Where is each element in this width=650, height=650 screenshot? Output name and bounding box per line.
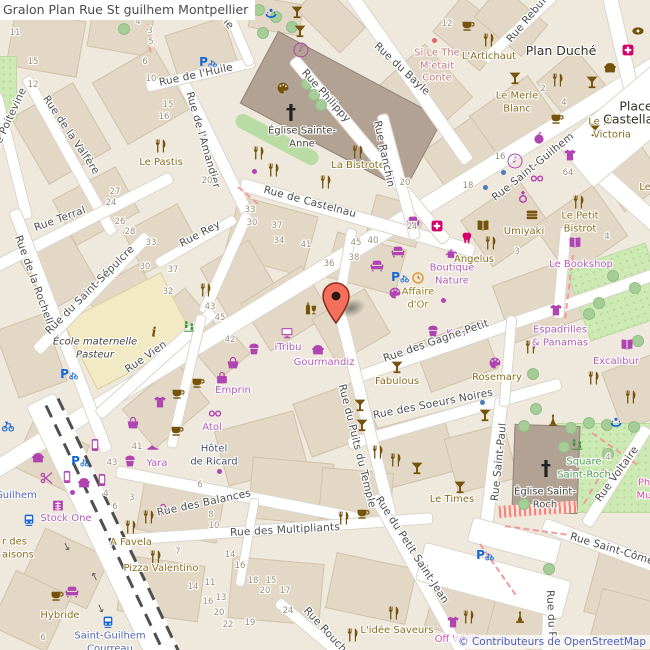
parking-icon: P xyxy=(71,455,89,467)
house-number: 37 xyxy=(272,221,283,231)
house-number: 5 xyxy=(148,37,153,47)
bag-icon xyxy=(216,372,229,385)
fork-icon xyxy=(154,140,167,153)
cup-icon xyxy=(51,589,64,602)
poi-label: Atol xyxy=(202,422,221,435)
couch-icon xyxy=(392,246,405,259)
house-number: 26 xyxy=(115,217,126,227)
house-number: 14 xyxy=(225,550,236,560)
tree xyxy=(593,297,605,309)
house-number: 64 xyxy=(563,168,574,178)
cocktail-icon xyxy=(586,76,599,89)
poi-label: L'idée Saveurs xyxy=(360,625,433,638)
poi-dot xyxy=(501,170,506,175)
fountain-icon xyxy=(265,8,278,21)
oval-icon xyxy=(632,25,645,38)
poi-dot xyxy=(441,298,446,303)
house-number: 22 xyxy=(223,620,234,630)
tree xyxy=(583,417,595,429)
house-number: 24 xyxy=(106,198,117,208)
poi-label: Le PetitBistrot xyxy=(561,211,598,236)
cup-icon xyxy=(462,19,475,32)
house-number: 20 xyxy=(202,176,213,186)
poi-label: Pizza Valentino xyxy=(123,563,198,576)
cup-icon xyxy=(192,376,205,389)
house-number: 3 xyxy=(514,247,519,257)
poi-label: École maternellePasteur xyxy=(53,337,137,362)
apple-icon xyxy=(533,132,546,145)
house-number: 41 xyxy=(301,240,312,250)
tree xyxy=(527,368,539,380)
cross-icon: † xyxy=(286,102,296,122)
poi-label: PhMu xyxy=(637,478,650,503)
bike-icon xyxy=(2,420,15,433)
fork-icon xyxy=(142,511,155,524)
poi-label: Affaired'Or xyxy=(402,287,435,312)
tree xyxy=(257,27,269,39)
house-number: 27 xyxy=(110,187,121,197)
tshirt-icon xyxy=(550,304,563,317)
couch-icon xyxy=(66,586,79,599)
poi-label: Hôtelde Ricard xyxy=(190,444,237,469)
poi-label: Guilhem xyxy=(0,490,37,503)
poi-label: Saint-GuilhemCourreau xyxy=(74,631,145,650)
fork-icon xyxy=(387,607,400,620)
house-number: 3 xyxy=(129,493,134,503)
poi-label: Fabulous xyxy=(375,376,419,389)
house-number: 16 xyxy=(203,597,214,607)
cross-icon: † xyxy=(541,458,551,478)
bread-icon xyxy=(312,344,325,357)
statue-icon xyxy=(514,611,527,624)
fork-icon xyxy=(389,454,402,467)
wine-icon xyxy=(305,303,318,316)
house-number: 42 xyxy=(225,335,236,345)
poi-label: Stock One xyxy=(40,513,91,526)
shoe-icon xyxy=(147,440,160,453)
house-number: 12 xyxy=(28,80,39,90)
house-number: 16 xyxy=(159,112,170,122)
bread-icon xyxy=(32,452,45,465)
house-number: 45 xyxy=(215,313,226,323)
house-number: 4 xyxy=(605,453,610,463)
poi-label: Hybride xyxy=(40,610,79,623)
poi-label: r desaisons xyxy=(2,537,34,562)
tree xyxy=(118,23,130,35)
house-number: 30 xyxy=(247,218,258,228)
poi-label: iTribu xyxy=(275,342,302,355)
poi-label: Église Sainte-Anne xyxy=(268,126,336,151)
poi-dot xyxy=(252,169,257,174)
poi-dot xyxy=(217,469,222,474)
fork-icon xyxy=(624,391,637,404)
tree xyxy=(518,420,530,432)
fork-icon xyxy=(351,146,364,159)
house-number: 24 xyxy=(283,606,294,616)
tshirt-icon xyxy=(154,396,167,409)
house-number: 34 xyxy=(274,236,285,246)
poi-label: Le xyxy=(639,182,650,195)
house-number: 10 xyxy=(146,74,157,84)
fork-icon xyxy=(319,176,332,189)
poi-label: Espadrilles& Panamas xyxy=(532,325,588,350)
cupcake-icon xyxy=(248,343,261,356)
house-number: 7 xyxy=(175,547,180,557)
house-number: 32 xyxy=(163,287,174,297)
house-number: 45 xyxy=(351,238,362,248)
map-pin[interactable] xyxy=(321,282,351,324)
house-number: 4 xyxy=(561,98,566,108)
map-canvas[interactable]: →→→i††♪♪PPPPPLe PastisLa BistroteL'Artic… xyxy=(0,0,650,650)
cocktail-icon xyxy=(391,361,404,374)
fountain-icon xyxy=(610,417,623,430)
tooth-icon xyxy=(462,232,475,245)
cup-icon xyxy=(172,387,185,400)
cup-icon xyxy=(551,112,564,125)
poi-label: Plan Duché xyxy=(526,45,597,58)
page-title: Gralon Plan Rue St guilhem Montpellier xyxy=(0,0,255,20)
house-number: 40 xyxy=(368,236,379,246)
house-number: 14 xyxy=(188,582,199,592)
street-label: Rue du P xyxy=(544,590,558,638)
fork-icon xyxy=(462,611,475,624)
fork-icon xyxy=(551,74,564,87)
tree xyxy=(632,335,644,347)
house-number: 11 xyxy=(205,578,216,588)
clock-icon xyxy=(412,272,425,285)
tree xyxy=(607,270,619,282)
poi-label: A Favela xyxy=(110,537,152,550)
house-number: 11 xyxy=(10,28,21,38)
poi-label: Église Saint-Roch xyxy=(514,487,576,512)
poi-label: Le Pastis xyxy=(139,157,183,170)
house-number: 19 xyxy=(245,618,256,628)
parking-icon: P xyxy=(476,549,494,561)
tree xyxy=(583,308,595,320)
fork-icon xyxy=(267,164,280,177)
fork-icon xyxy=(484,237,497,250)
cocktail-icon xyxy=(454,481,467,494)
fork-icon xyxy=(199,284,212,297)
fork-icon xyxy=(482,34,495,47)
poi-label: SquareSaint-Roch xyxy=(557,457,611,482)
house-number: 33 xyxy=(245,205,256,215)
bread-icon xyxy=(604,62,617,75)
house-number: 4 xyxy=(103,489,108,499)
ring-icon xyxy=(517,191,530,204)
basket-icon xyxy=(127,417,140,430)
poi-label: PlaceCastellane xyxy=(603,101,650,126)
basket-icon xyxy=(227,357,240,370)
tree xyxy=(558,441,570,453)
house-number: 33 xyxy=(146,238,157,248)
house-number: 3 xyxy=(147,26,152,36)
house-number: 36 xyxy=(324,259,335,269)
music-icon: ♪ xyxy=(508,154,523,169)
cocktail-icon xyxy=(479,409,492,422)
poi-label: BoutiqueNature xyxy=(430,263,475,288)
cocktail-icon xyxy=(291,6,304,19)
poi-label: Yara xyxy=(146,458,167,471)
burger-icon xyxy=(526,209,539,222)
palette-icon xyxy=(389,287,402,300)
phone-icon xyxy=(96,474,109,487)
house-number: 41 xyxy=(132,442,143,452)
cocktail-icon xyxy=(294,25,307,38)
house-number: 15 xyxy=(266,576,277,586)
house-number: 37 xyxy=(168,265,179,275)
book-icon xyxy=(477,220,490,233)
house-number: 15 xyxy=(163,100,174,110)
bread-icon xyxy=(78,477,91,490)
med-icon xyxy=(431,220,444,233)
house-number: 24 xyxy=(407,222,418,232)
glasses-icon xyxy=(209,407,222,420)
poi-dot xyxy=(432,38,437,43)
fork-icon xyxy=(371,446,384,459)
cup-icon xyxy=(171,424,184,437)
house-number: 6 xyxy=(142,57,147,67)
house-number: 6 xyxy=(197,480,202,490)
house-number: 16 xyxy=(235,561,246,571)
house-number: 15 xyxy=(28,57,39,67)
tree xyxy=(530,403,542,415)
phone-icon xyxy=(61,471,74,484)
book-icon xyxy=(621,339,634,352)
house-number: 6 xyxy=(40,633,45,643)
house-number: 18 xyxy=(463,181,474,191)
poi-label: Umiyaki xyxy=(504,226,544,239)
house-number: 8 xyxy=(208,510,213,520)
house-number: 43 xyxy=(107,458,118,468)
palette-icon xyxy=(489,357,502,370)
poi-dot xyxy=(483,185,488,190)
house-number: 16 xyxy=(495,152,506,162)
house-number: 4 xyxy=(604,232,609,242)
poi-label: Rosemary xyxy=(472,372,522,385)
house-number: 17 xyxy=(280,586,291,596)
pc-icon xyxy=(281,327,294,340)
med-icon xyxy=(622,44,635,57)
phone-icon xyxy=(89,439,102,452)
music-icon: ♪ xyxy=(294,43,309,58)
poi-label: La Bistrote xyxy=(331,160,385,173)
book-icon xyxy=(569,237,582,250)
fork-icon xyxy=(124,521,137,534)
house-number: 2 xyxy=(540,84,545,94)
tree xyxy=(543,563,555,575)
palette-icon xyxy=(277,82,290,95)
fork-icon xyxy=(149,551,162,564)
statue-icon xyxy=(547,414,560,427)
house-number: 6 xyxy=(112,502,117,512)
parking-icon: P xyxy=(60,368,78,380)
info-icon: i xyxy=(152,327,157,340)
tram-icon xyxy=(102,616,115,629)
scissors-icon xyxy=(41,472,54,485)
poi-label: Le MerleBlanc xyxy=(496,91,539,116)
tree xyxy=(628,421,640,433)
poi-label: Le Bookshop xyxy=(549,259,613,272)
house-number: 13 xyxy=(216,593,227,603)
osm-attribution[interactable]: © Contributeurs de OpenStreetMap xyxy=(454,635,650,649)
fork-icon xyxy=(346,629,359,642)
store-icon xyxy=(52,499,65,512)
cocktail-icon xyxy=(411,462,424,475)
house-number: 18 xyxy=(248,576,259,586)
parking-icon: P xyxy=(391,271,409,283)
house-number: 20 xyxy=(400,178,411,188)
house-number: 12 xyxy=(442,19,453,29)
cocktail-icon xyxy=(509,72,522,85)
house-number: 43 xyxy=(205,302,216,312)
house-number: 20 xyxy=(214,608,225,618)
house-number: 10 xyxy=(209,521,220,531)
play-icon xyxy=(571,438,584,451)
fork-icon xyxy=(587,372,600,385)
building xyxy=(325,552,417,625)
poi-dot xyxy=(70,490,75,495)
tree xyxy=(629,282,641,294)
tshirt-icon xyxy=(564,149,577,162)
house-number: 30 xyxy=(140,262,151,272)
poi-label: Le Times xyxy=(430,494,474,507)
poi-label: Excalibur xyxy=(593,356,639,369)
poi-label: Emprin xyxy=(215,385,251,398)
poi-label: L'Artichaut xyxy=(462,51,516,64)
tree xyxy=(565,422,577,434)
cocktail-icon xyxy=(354,399,367,412)
couch-icon xyxy=(371,260,384,273)
tram-icon xyxy=(23,514,36,527)
fork-icon xyxy=(572,196,585,209)
house-number: 38 xyxy=(349,253,360,263)
cupcake-icon xyxy=(124,455,137,468)
oneway-arrow-icon: → xyxy=(93,602,109,616)
house-number: 28 xyxy=(125,227,136,237)
tshirt-icon xyxy=(447,616,460,629)
fork-icon xyxy=(252,147,265,160)
play-icon xyxy=(183,320,196,333)
poi-label: Gourmandiz xyxy=(294,357,355,370)
house-number: 20 xyxy=(260,586,271,596)
